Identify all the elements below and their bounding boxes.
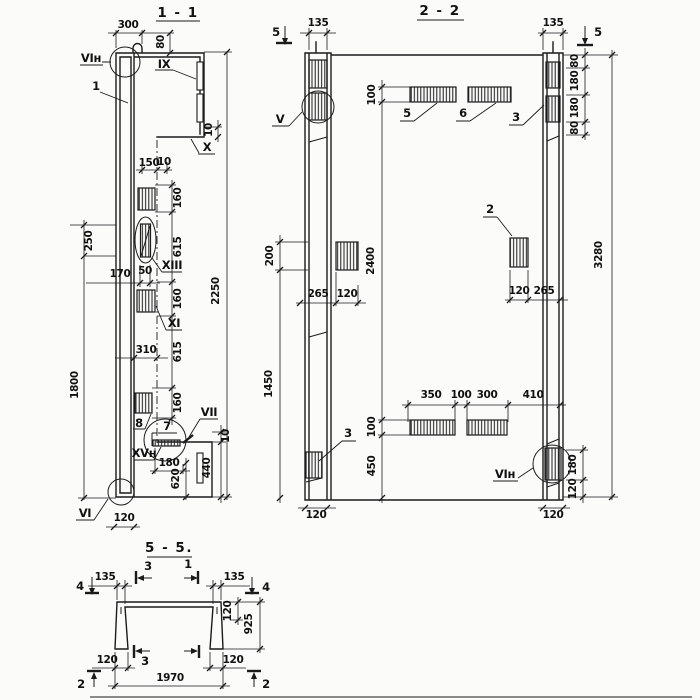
dim-100-mid: 100 xyxy=(451,389,472,401)
dim-120-rb: 120 xyxy=(567,479,579,500)
arrow-up-icon xyxy=(251,672,257,679)
section-5-5-title: 5 - 5. xyxy=(145,540,193,556)
dim-450: 450 xyxy=(366,456,378,477)
embedded-plate xyxy=(138,188,155,210)
embedded-plate xyxy=(336,242,358,270)
edge-plate xyxy=(197,94,203,122)
dim-310: 310 xyxy=(136,344,157,356)
arrow-left-icon xyxy=(137,575,144,581)
dim-100-top: 100 xyxy=(366,85,378,106)
marker-1-top: 1 xyxy=(184,557,192,571)
dim-180-b: 180 xyxy=(569,98,581,119)
label-x: X xyxy=(203,140,212,154)
dim-160-b: 160 xyxy=(172,289,184,310)
embedded-plate xyxy=(546,96,560,122)
label-xvn: XVн xyxy=(132,446,157,460)
dim-300: 300 xyxy=(477,389,498,401)
dim-3280: 3280 xyxy=(593,241,605,269)
dim-180-a: 180 xyxy=(569,71,581,92)
dim-100-bottom: 100 xyxy=(366,417,378,438)
dim-265-left: 265 xyxy=(308,288,329,300)
arrow-right-icon xyxy=(191,648,198,654)
embedded-plate xyxy=(410,420,455,435)
embedded-plate xyxy=(545,448,561,480)
dim-135-left: 135 xyxy=(308,17,329,29)
dim-180-rb: 180 xyxy=(567,455,579,476)
embedded-plate xyxy=(467,420,507,435)
edge-plate xyxy=(197,62,203,90)
drawing-canvas: 1 - 1 300 80 150 10 160 615 160 615 160 … xyxy=(0,0,700,700)
dim-440: 440 xyxy=(201,458,213,479)
section-1-1-title: 1 - 1 xyxy=(157,5,198,21)
dim-160-c: 160 xyxy=(172,393,184,414)
dim-350: 350 xyxy=(421,389,442,401)
dim-80-a: 80 xyxy=(569,54,581,68)
label-vin-top: VIн xyxy=(81,51,101,65)
label-7: 7 xyxy=(163,419,171,433)
channel-outline xyxy=(115,602,223,649)
section-1-1: 1 - 1 300 80 150 10 160 615 160 615 160 … xyxy=(69,5,232,530)
label-3-top: 3 xyxy=(512,110,520,124)
dim-925: 925 xyxy=(243,614,255,635)
label-2: 2 xyxy=(486,202,494,216)
label-5: 5 xyxy=(403,106,411,120)
label-6: 6 xyxy=(459,106,467,120)
dim-135-right: 135 xyxy=(543,17,564,29)
dim-2400: 2400 xyxy=(365,247,377,275)
marker-4-left: 4 xyxy=(76,579,84,593)
dim-615-b: 615 xyxy=(172,342,184,363)
blueprint-sheet: 1 - 1 300 80 150 10 160 615 160 615 160 … xyxy=(0,0,700,700)
label-xiii: XIII xyxy=(162,258,183,272)
section-2-2: 2 - 2 5 5 135 135 100 2400 100 450 200 1… xyxy=(263,3,618,521)
label-3-bottom: 3 xyxy=(344,426,352,440)
embedded-plate xyxy=(468,87,511,102)
detail-circle-vin xyxy=(110,47,140,77)
embedded-plate xyxy=(153,440,180,446)
dim-10-x: 10 xyxy=(203,123,215,137)
dim-80: 80 xyxy=(155,35,167,49)
dim-120-left: 120 xyxy=(337,288,358,300)
embedded-plate xyxy=(546,62,560,88)
dim-50: 50 xyxy=(138,265,152,277)
dim-300: 300 xyxy=(118,19,139,31)
section-2-2-title: 2 - 2 xyxy=(419,3,460,19)
dim-1800: 1800 xyxy=(69,371,81,399)
dim-200: 200 xyxy=(264,246,276,267)
dim-250: 250 xyxy=(83,231,95,252)
label-vii: VII xyxy=(201,405,218,419)
dim-1450: 1450 xyxy=(263,370,275,398)
dim-180: 180 xyxy=(159,457,180,469)
dim-10-foot: 10 xyxy=(220,429,232,443)
dim-120-right: 120 xyxy=(509,285,530,297)
arrow-up-icon xyxy=(91,672,97,679)
dim-620: 620 xyxy=(170,469,182,490)
embedded-plate xyxy=(135,393,152,413)
dim-170: 170 xyxy=(110,268,131,280)
marker-4-right: 4 xyxy=(262,580,270,594)
marker-3-bottom: 3 xyxy=(141,654,149,668)
dim-120-bottom: 120 xyxy=(114,512,135,524)
label-1: 1 xyxy=(92,79,100,93)
embedded-plate xyxy=(309,60,327,88)
embedded-plate xyxy=(309,93,327,120)
dim-265-right: 265 xyxy=(534,285,555,297)
marker-3-top: 3 xyxy=(144,559,152,573)
dim-120-br: 120 xyxy=(543,509,564,521)
label-xi: XI xyxy=(168,316,181,330)
label-8: 8 xyxy=(135,416,143,430)
detail-circle-vi xyxy=(108,479,134,505)
corner-marks xyxy=(121,607,217,614)
label-v: V xyxy=(276,112,285,126)
dim-10-top: 10 xyxy=(157,156,171,168)
dim-160-a: 160 xyxy=(172,188,184,209)
cut-marker-5-right: 5 xyxy=(594,25,602,39)
marker-2-right: 2 xyxy=(262,677,270,691)
dim-120-slab: 120 xyxy=(222,601,234,622)
marker-2-left: 2 xyxy=(77,677,85,691)
label-vi: VI xyxy=(79,506,92,520)
dim-615-a: 615 xyxy=(172,237,184,258)
dim-410: 410 xyxy=(523,389,544,401)
embedded-plate xyxy=(137,290,155,312)
label-ix: IX xyxy=(158,57,171,71)
label-vin-bottom: VIн xyxy=(495,467,515,481)
dim-135-right: 135 xyxy=(224,571,245,583)
cut-marker-5-left: 5 xyxy=(272,25,280,39)
tick-marks xyxy=(112,583,263,689)
embedded-plate xyxy=(510,238,528,267)
dim-120-br: 120 xyxy=(223,654,244,666)
dim-80-b: 80 xyxy=(569,121,581,135)
embedded-plate xyxy=(306,452,322,478)
section-5-5: 5 - 5. 135 135 120 925 120 120 1970 4 4 … xyxy=(76,540,270,691)
embedded-plate xyxy=(410,87,456,102)
dim-1970: 1970 xyxy=(156,672,184,684)
dim-135-left: 135 xyxy=(95,571,116,583)
dim-120-bl: 120 xyxy=(306,509,327,521)
dim-120-bl: 120 xyxy=(97,654,118,666)
dim-2250: 2250 xyxy=(210,277,222,305)
